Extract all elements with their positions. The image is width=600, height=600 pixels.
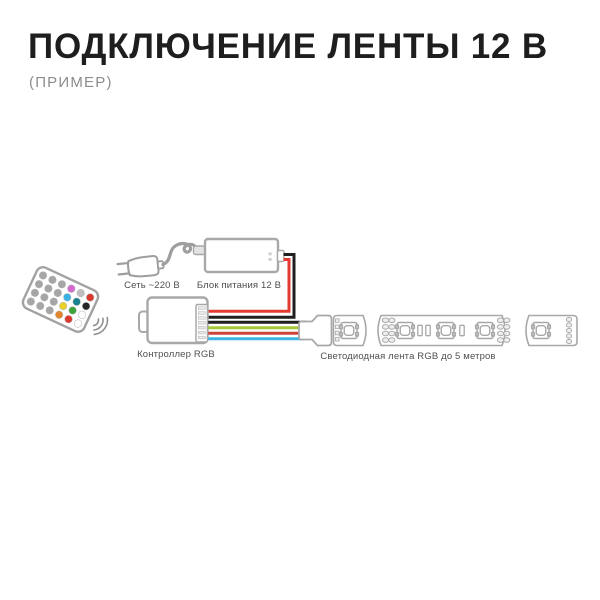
ir-waves-icon bbox=[94, 318, 108, 335]
psu-output-socket bbox=[278, 251, 285, 262]
led-chip bbox=[340, 323, 359, 339]
page: ПОДКЛЮЧЕНИЕ ЛЕНТЫ 12 В (ПРИМЕР) bbox=[0, 0, 600, 600]
led-chip bbox=[437, 323, 456, 339]
led-strip bbox=[334, 316, 578, 346]
psu-terminal bbox=[269, 253, 272, 256]
psu-terminal bbox=[269, 258, 272, 261]
strip-connector bbox=[299, 316, 332, 346]
controller-label: Контроллер RGB bbox=[128, 349, 224, 360]
led-chip bbox=[476, 323, 495, 339]
psu-label: Блок питания 12 В bbox=[191, 280, 287, 291]
mains-cable bbox=[163, 244, 195, 265]
wiring-diagram bbox=[0, 0, 600, 600]
mains-label: Сеть ~220 В bbox=[104, 280, 200, 291]
led-chip bbox=[532, 323, 551, 339]
resistor bbox=[418, 325, 422, 335]
ir-remote-icon bbox=[21, 265, 101, 334]
psu-box bbox=[194, 239, 285, 272]
rgb-wires bbox=[208, 322, 306, 339]
resistor bbox=[426, 325, 430, 335]
controller-terminal-block bbox=[196, 305, 208, 343]
power-plug-icon bbox=[117, 255, 164, 279]
strip-pads bbox=[566, 317, 571, 343]
strip-label: Светодиодная лента RGB до 5 метров bbox=[288, 351, 528, 362]
psu-input-socket bbox=[194, 246, 206, 255]
led-chip bbox=[396, 323, 415, 339]
resistor bbox=[460, 325, 464, 335]
